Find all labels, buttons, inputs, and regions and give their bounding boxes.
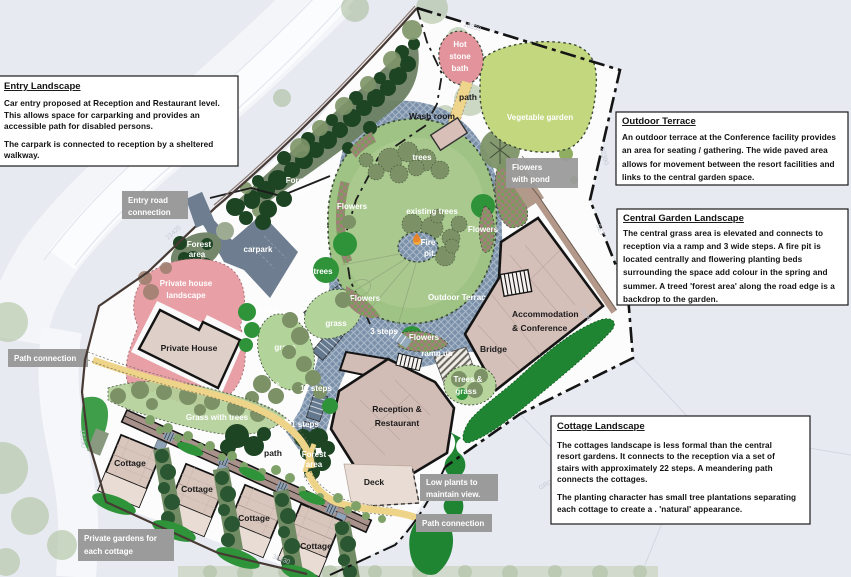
svg-text:Restaurant: Restaurant (375, 418, 420, 428)
svg-text:Entry road: Entry road (128, 196, 168, 205)
svg-text:connection: connection (128, 208, 171, 217)
svg-text:located centrally and flowerin: located centrally and flowering planting… (623, 255, 803, 264)
svg-text:summer. A treed 'forest area': summer. A treed 'forest area' along the … (623, 282, 835, 291)
svg-text:Private gardens for: Private gardens for (84, 534, 157, 543)
svg-text:existing trees: existing trees (406, 207, 458, 216)
svg-text:surrounding the space add colo: surrounding the space add colour in the … (623, 268, 828, 277)
svg-text:This allows space for carparki: This allows space for carparking and pro… (4, 111, 200, 120)
svg-text:Hot: Hot (453, 40, 467, 49)
svg-text:backdrop to the garden.: backdrop to the garden. (623, 295, 718, 304)
svg-text:resort gardens. It connects t: resort gardens. It connects to the recep… (557, 452, 775, 461)
svg-text:Grass with trees: Grass with trees (186, 413, 249, 422)
svg-text:bath: bath (452, 64, 469, 73)
svg-text:Fire: Fire (421, 238, 436, 247)
svg-text:grass: grass (455, 387, 477, 396)
svg-text:Reception &: Reception & (372, 404, 422, 414)
svg-text:Private House: Private House (161, 343, 218, 353)
svg-text:Path connection: Path connection (422, 519, 484, 528)
svg-text:Cottage: Cottage (238, 513, 270, 523)
svg-text:trees: trees (258, 306, 278, 315)
svg-text:allows for movement between th: allows for movement between the resort f… (622, 160, 835, 169)
svg-text:ramp up: ramp up (421, 349, 453, 358)
svg-text:grass: grass (325, 319, 347, 328)
svg-text:Deck: Deck (364, 477, 385, 487)
svg-text:Vegetable garden: Vegetable garden (507, 113, 573, 122)
svg-text:with pond: with pond (511, 175, 550, 184)
svg-text:each cottage to create a . 'na: each cottage to create a . 'natural' app… (557, 505, 742, 514)
svg-text:area: area (306, 460, 323, 469)
svg-text:stone: stone (449, 52, 471, 61)
svg-text:Path connection: Path connection (14, 354, 76, 363)
svg-text:Cottage: Cottage (181, 484, 213, 494)
svg-text:connects the cottages.: connects the cottages. (557, 475, 647, 484)
svg-text:The planting character has sma: The planting character has small tree pl… (557, 493, 796, 502)
svg-text:Forest: Forest (286, 176, 311, 185)
svg-text:Central Garden Landscape: Central Garden Landscape (623, 213, 744, 224)
svg-text:Accommodation: Accommodation (512, 309, 579, 319)
svg-text:Flowers: Flowers (468, 225, 499, 234)
svg-text:area: area (189, 250, 206, 259)
svg-text:Trees &: Trees & (454, 375, 483, 384)
svg-text:Wash room: Wash room (409, 111, 455, 121)
svg-text:links to the central garden sp: links to the central garden space. (622, 173, 754, 182)
svg-text:reception via a ramp and 3 wid: reception via a ramp and 3 wide steps. A… (623, 242, 821, 251)
svg-text:Cottage: Cottage (300, 541, 332, 551)
svg-text:pit.: pit. (424, 249, 436, 258)
svg-text:The central grass area is elev: The central grass area is elevated and c… (623, 229, 823, 238)
svg-text:an area for seating / gatherin: an area for seating / gathering. The wid… (622, 146, 828, 155)
svg-text:An outdoor terrace at the Conf: An outdoor terrace at the Conference fac… (622, 133, 836, 142)
svg-text:Outdoor Terrace: Outdoor Terrace (428, 293, 491, 302)
svg-text:Flowers: Flowers (337, 202, 368, 211)
svg-text:The cottages landscape is less: The cottages landscape is less formal th… (557, 441, 772, 450)
svg-text:The carpark is connected to re: The carpark is connected to reception by… (4, 140, 213, 149)
svg-text:trees: trees (412, 153, 432, 162)
svg-text:maintain view.: maintain view. (426, 490, 480, 499)
svg-text:11 steps: 11 steps (300, 384, 332, 393)
svg-text:Outdoor Terrace: Outdoor Terrace (622, 116, 696, 127)
svg-text:trees: trees (313, 267, 333, 276)
svg-text:path: path (264, 448, 282, 458)
svg-text:Car entry proposed at Receptio: Car entry proposed at Reception and Rest… (4, 99, 220, 108)
svg-text:carpark: carpark (244, 245, 273, 254)
svg-text:each cottage: each cottage (84, 547, 133, 556)
svg-text:Forest: Forest (187, 240, 212, 249)
svg-text:Entry Landscape: Entry Landscape (4, 81, 81, 92)
svg-text:& Conference: & Conference (512, 323, 568, 333)
svg-text:Low plants to: Low plants to (426, 478, 478, 487)
svg-text:Cottage: Cottage (114, 458, 146, 468)
svg-text:Flowers: Flowers (350, 294, 381, 303)
svg-text:Flowers: Flowers (512, 163, 543, 172)
svg-text:Cottage Landscape: Cottage Landscape (557, 421, 645, 432)
svg-text:accessible path for disabled p: accessible path for disabled persons. (4, 122, 153, 131)
svg-text:Flowers: Flowers (409, 333, 440, 342)
svg-text:walkway.: walkway. (3, 151, 40, 160)
svg-text:path: path (459, 92, 477, 102)
svg-text:3 steps: 3 steps (370, 327, 398, 336)
svg-text:landscape: landscape (166, 291, 206, 300)
svg-text:stairs with approximately 22 s: stairs with approximately 22 steps. A me… (557, 464, 773, 473)
svg-text:Forest: Forest (302, 450, 327, 459)
svg-text:Bridge: Bridge (480, 344, 507, 354)
svg-text:Private house: Private house (160, 279, 213, 288)
